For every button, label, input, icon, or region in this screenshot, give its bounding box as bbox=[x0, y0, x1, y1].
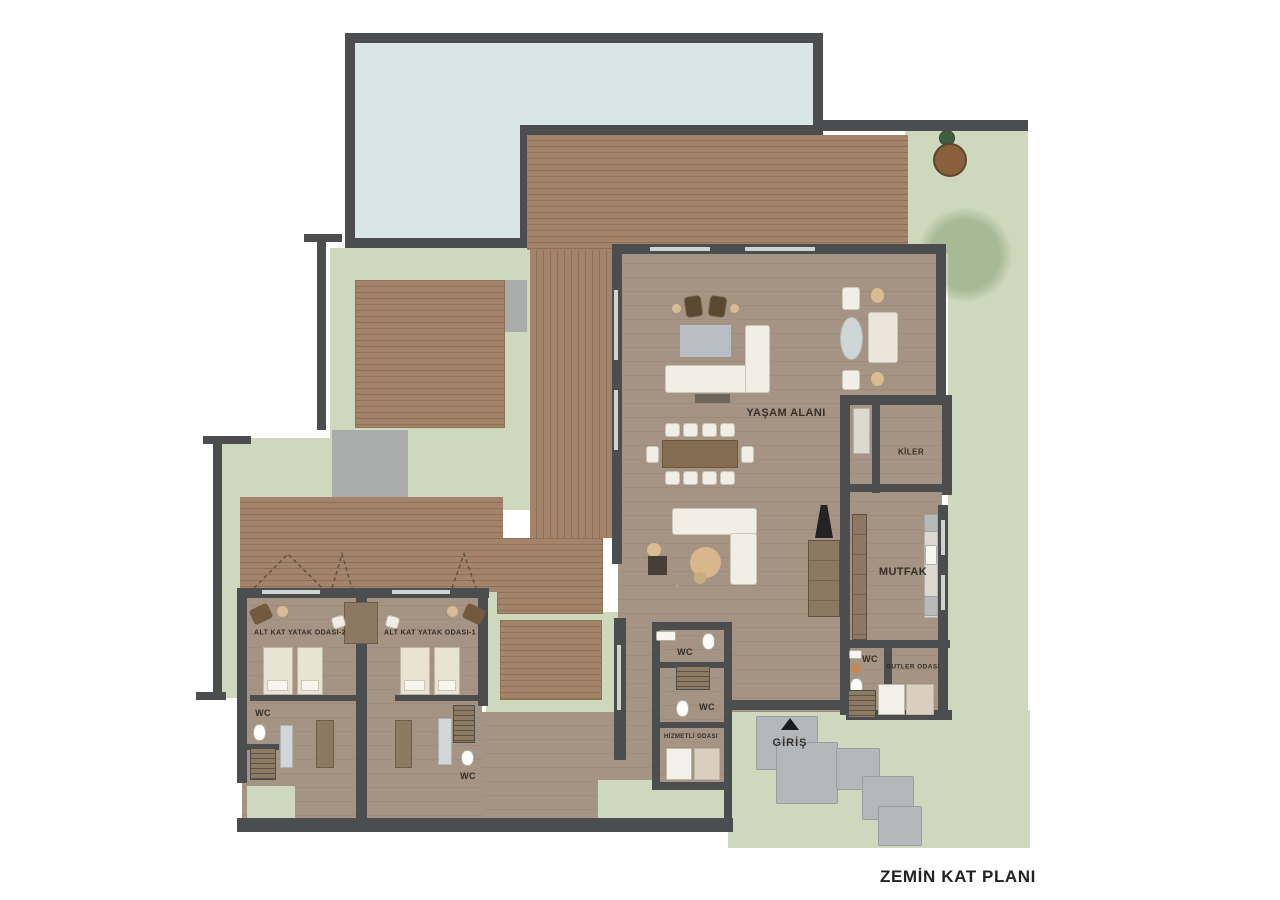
fence-west-cap bbox=[203, 436, 251, 444]
window-bedroom1 bbox=[392, 590, 450, 594]
entrance-pad-5 bbox=[878, 806, 922, 846]
bedroom1-bedfoot-wall bbox=[395, 695, 485, 701]
kitchen-island bbox=[852, 514, 867, 640]
bedroom2-bed-1 bbox=[263, 647, 293, 695]
tree-icon bbox=[933, 143, 967, 177]
floor-plan: YAŞAM ALANI KİLER MUTFAK WC BUTLER ODASI… bbox=[0, 0, 1280, 900]
window-west-1 bbox=[614, 290, 618, 360]
bedroom1-side-table bbox=[447, 606, 458, 617]
bedroom1-bed-2 bbox=[434, 647, 460, 695]
bedroom2-side-table bbox=[277, 606, 288, 617]
entrance-arrow-icon bbox=[781, 718, 799, 730]
label-entrance: GİRİŞ bbox=[773, 737, 808, 749]
label-servant-wc1: WC bbox=[677, 647, 693, 657]
dining-chair bbox=[683, 471, 698, 485]
dining-table bbox=[662, 440, 738, 468]
deck-square-small bbox=[497, 538, 603, 614]
dining-chair bbox=[720, 423, 735, 437]
butler-wc-sink-icon bbox=[849, 650, 862, 659]
concrete-pad-small bbox=[505, 280, 527, 332]
label-bedroom2-wc: WC bbox=[255, 708, 271, 718]
deck-courtyard bbox=[500, 620, 602, 700]
window-bedroom2 bbox=[262, 590, 320, 594]
butler-bed bbox=[878, 684, 905, 715]
daybed bbox=[868, 312, 898, 363]
window-north-2 bbox=[745, 247, 815, 251]
dining-chair bbox=[665, 471, 680, 485]
bedroom1-bed-1 bbox=[400, 647, 430, 695]
sofa-l1-vertical bbox=[745, 325, 770, 393]
dining-chair bbox=[646, 446, 659, 463]
living-rug bbox=[680, 325, 731, 357]
servant-wc2-sink-icon bbox=[676, 585, 678, 587]
kitchen-wall-north bbox=[840, 484, 952, 492]
window-kitchen-2 bbox=[941, 575, 945, 610]
oval-table bbox=[840, 317, 863, 360]
bedroom1-wardrobe bbox=[395, 720, 412, 768]
concrete-pad-large bbox=[332, 430, 408, 497]
side-table-2 bbox=[730, 304, 739, 313]
fridge-icon bbox=[924, 596, 938, 616]
bedroom1-wc-toilet-icon bbox=[461, 750, 474, 766]
lawn-patch-servant-south bbox=[652, 788, 732, 820]
servant-wc1-toilet-icon bbox=[702, 633, 715, 650]
servant-wc1-sink-icon bbox=[656, 631, 676, 641]
living-wall-east bbox=[936, 244, 946, 404]
lawn-patch-hallway bbox=[247, 786, 295, 820]
dining-chair bbox=[702, 471, 717, 485]
window-kitchen-1 bbox=[941, 520, 945, 555]
pouf-2 bbox=[871, 372, 884, 386]
fireplace-cabinet bbox=[808, 540, 840, 617]
pillow bbox=[404, 680, 425, 691]
living-wall-south bbox=[728, 700, 852, 710]
servant-divider-2 bbox=[652, 722, 732, 728]
tv-console bbox=[695, 394, 730, 403]
bedroom1-mirror bbox=[438, 718, 452, 765]
dining-chair bbox=[720, 471, 735, 485]
dining-chair bbox=[702, 423, 717, 437]
pantry-wall-west bbox=[872, 405, 880, 493]
dining-chair bbox=[665, 423, 680, 437]
pergola-roof-marks bbox=[240, 548, 503, 592]
pillow bbox=[267, 680, 288, 691]
bedroom2-wardrobe bbox=[316, 720, 334, 768]
bedroom1-wall-east bbox=[478, 588, 488, 706]
small-table bbox=[648, 556, 667, 575]
label-butler-room: BUTLER ODASI bbox=[886, 664, 940, 671]
deck-square-lawn bbox=[355, 280, 505, 428]
pillow bbox=[301, 680, 319, 691]
side-table-1 bbox=[672, 304, 681, 313]
butler-bed-2 bbox=[906, 684, 934, 715]
servant-bed bbox=[666, 748, 692, 780]
bedroom2-bedfoot-wall bbox=[250, 695, 358, 701]
pantry-wall-north bbox=[840, 395, 952, 405]
entrance-pad-2 bbox=[776, 742, 838, 804]
pillow bbox=[438, 680, 456, 691]
bedroom2-stairs bbox=[250, 748, 276, 780]
service-wall-west bbox=[840, 395, 850, 715]
armchair-2 bbox=[708, 295, 728, 318]
pool-water-left bbox=[355, 43, 520, 238]
servant-wall-west bbox=[652, 622, 660, 788]
lounge-chair-1 bbox=[842, 287, 860, 310]
pantry-wall-east bbox=[942, 395, 952, 495]
servant-bed-2 bbox=[694, 748, 720, 780]
deck-top-terrace bbox=[527, 135, 908, 250]
bedroom2-wc-toilet-icon bbox=[253, 724, 266, 741]
plan-title: ZEMİN KAT PLANI bbox=[880, 867, 1036, 887]
butler-stairs bbox=[848, 690, 876, 718]
servant-wall-north bbox=[652, 622, 732, 630]
reading-chair bbox=[647, 543, 661, 557]
sofa-l2-vertical bbox=[730, 533, 757, 585]
label-butler-wc: WC bbox=[862, 654, 878, 664]
bedroom2-mirror bbox=[280, 725, 293, 768]
kitchen-wall-south bbox=[840, 640, 950, 648]
pouf-1 bbox=[871, 288, 884, 303]
label-bedroom1: ALT KAT YATAK ODASI-1 bbox=[384, 630, 476, 637]
lounge-chair-2 bbox=[842, 370, 860, 390]
fence-west-post bbox=[213, 436, 222, 698]
fence-north-post bbox=[317, 234, 326, 430]
label-bedroom1-wc: WC bbox=[460, 771, 476, 781]
dining-chair bbox=[683, 423, 698, 437]
servant-wc2-toilet-icon bbox=[676, 700, 689, 717]
bedroom-wall-west bbox=[237, 588, 247, 783]
window-north-1 bbox=[650, 247, 710, 251]
window-west-3 bbox=[617, 645, 621, 710]
window-west-2 bbox=[614, 390, 618, 450]
butler-wall-east bbox=[938, 640, 948, 720]
lawn-right-strip bbox=[948, 250, 1028, 715]
servant-stairs bbox=[676, 666, 710, 690]
round-pouf bbox=[694, 572, 706, 584]
oven-icon bbox=[924, 514, 938, 532]
boundary-wall-top bbox=[820, 120, 1028, 131]
fence-west-end-cap bbox=[196, 692, 226, 700]
dining-chair bbox=[741, 446, 754, 463]
servant-wall-south bbox=[652, 782, 732, 790]
label-living: YAŞAM ALANI bbox=[746, 407, 825, 419]
bedroom1-stairs bbox=[453, 705, 475, 743]
label-pantry: KİLER bbox=[898, 448, 924, 457]
bedroom2-bed-2 bbox=[297, 647, 323, 695]
lawn-patch-terrace-edge bbox=[598, 780, 660, 820]
sofa-l2-horizontal bbox=[672, 508, 757, 535]
corridor-counter bbox=[853, 408, 870, 454]
label-kitchen: MUTFAK bbox=[879, 566, 927, 578]
label-servant-room: HİZMETLİ ODASI bbox=[664, 734, 718, 740]
boundary-wall-south bbox=[237, 818, 733, 832]
bedroom2-desk bbox=[344, 602, 378, 644]
armchair-1 bbox=[684, 295, 704, 318]
kitchen-sink-icon bbox=[925, 545, 937, 565]
deck-side-strip bbox=[530, 250, 618, 538]
butler-wc-stool bbox=[851, 664, 860, 673]
label-servant-wc2: WC bbox=[699, 702, 715, 712]
label-bedroom2: ALT KAT YATAK ODASI-2 bbox=[254, 630, 346, 637]
